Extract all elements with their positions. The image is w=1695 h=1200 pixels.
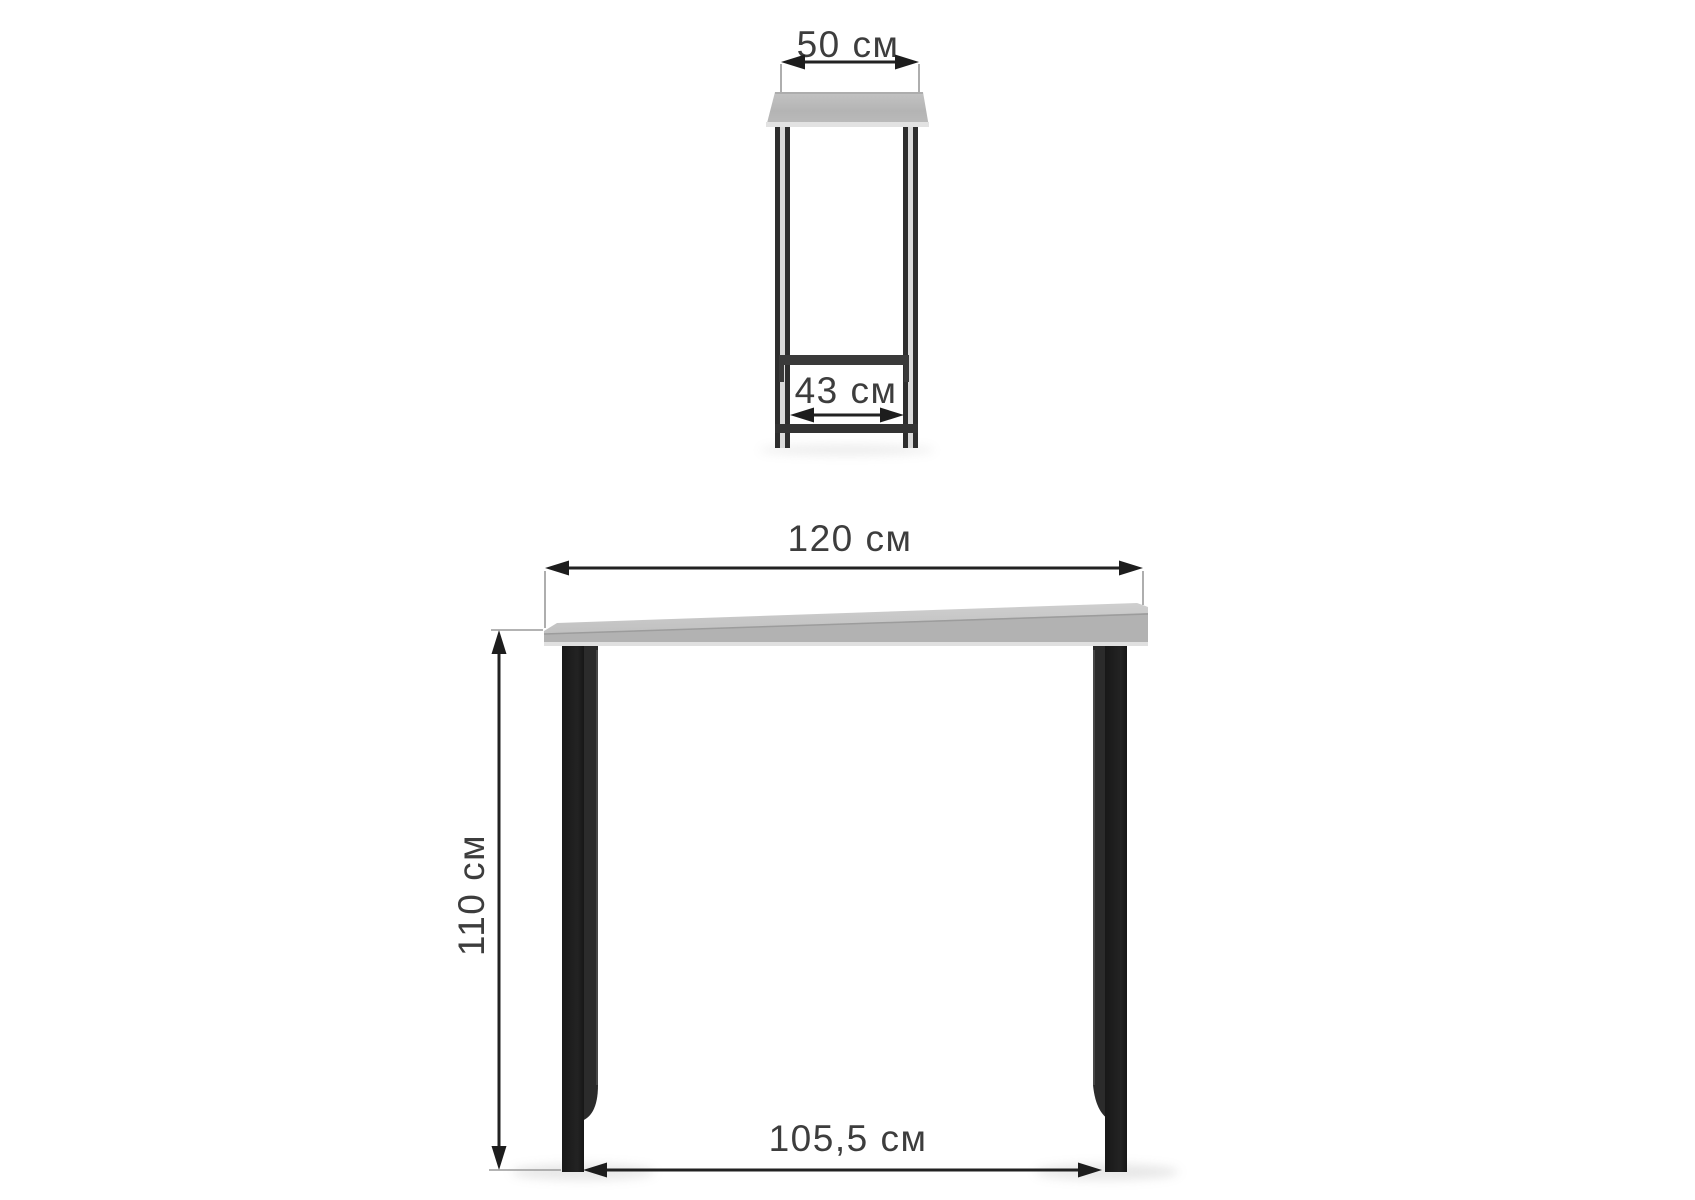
dimension-label-105-5cm: 105,5 см: [769, 1118, 928, 1159]
dimension-height: 110 см: [451, 630, 561, 1170]
arrowhead-left-icon: [545, 561, 569, 576]
front-right-leg: [1105, 645, 1127, 1172]
arrowhead-down-icon: [492, 1146, 507, 1170]
arrowhead-right-icon: [895, 55, 919, 70]
dimension-label-120cm: 120 см: [788, 518, 913, 559]
side-view: 50 см 43 см: [759, 24, 935, 455]
dimension-base-inner-width: 105,5 см: [583, 1118, 1102, 1178]
dimension-label-110cm: 110 см: [451, 834, 492, 956]
side-left-leg-front-tube: [775, 127, 780, 448]
dimension-label-50cm: 50 см: [797, 24, 900, 65]
bar-table-dimension-drawing: 50 см 43 см: [0, 0, 1695, 1200]
side-tabletop-slab: [766, 92, 929, 127]
arrowhead-up-icon: [492, 630, 507, 654]
side-right-leg-front-tube: [903, 127, 908, 448]
side-tabletop: [766, 92, 929, 127]
dimension-base-inner-depth: 43 см: [790, 370, 904, 423]
arrowhead-right-icon: [1119, 561, 1143, 576]
stretcher-stub-right: [904, 365, 909, 382]
front-left-leg: [562, 645, 584, 1172]
front-view: 120 см 110 см: [451, 518, 1179, 1180]
side-right-leg-back-tube: [913, 127, 918, 448]
arrowhead-left-icon: [781, 55, 805, 70]
side-tabletop-bottom-highlight: [766, 122, 929, 127]
side-left-leg-back-tube: [785, 127, 790, 448]
dimension-diagram-page: 50 см 43 см: [0, 0, 1695, 1200]
front-tabletop-bottom-highlight: [544, 642, 1148, 646]
dimension-tabletop-depth: 50 см: [781, 24, 919, 92]
front-tabletop: [544, 603, 1148, 646]
side-bottom-bar: [775, 424, 918, 433]
stretcher-stub-left: [779, 365, 784, 382]
dimension-label-43cm: 43 см: [795, 370, 898, 411]
stretcher-bar: [779, 355, 909, 365]
